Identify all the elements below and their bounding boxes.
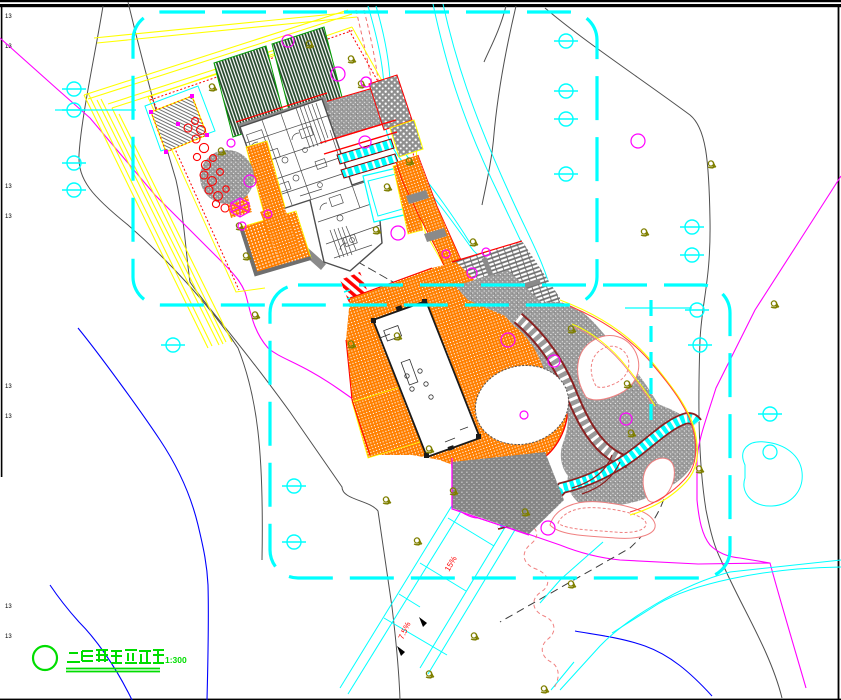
- svg-text:13: 13: [5, 184, 12, 190]
- svg-text:13: 13: [5, 414, 12, 420]
- svg-text:13: 13: [5, 384, 12, 390]
- svg-text:13: 13: [5, 214, 12, 220]
- svg-text:13: 13: [5, 14, 12, 20]
- svg-text:1:300: 1:300: [165, 655, 187, 665]
- svg-text:13: 13: [5, 634, 12, 640]
- svg-text:13: 13: [5, 44, 12, 50]
- svg-text:13: 13: [5, 604, 12, 610]
